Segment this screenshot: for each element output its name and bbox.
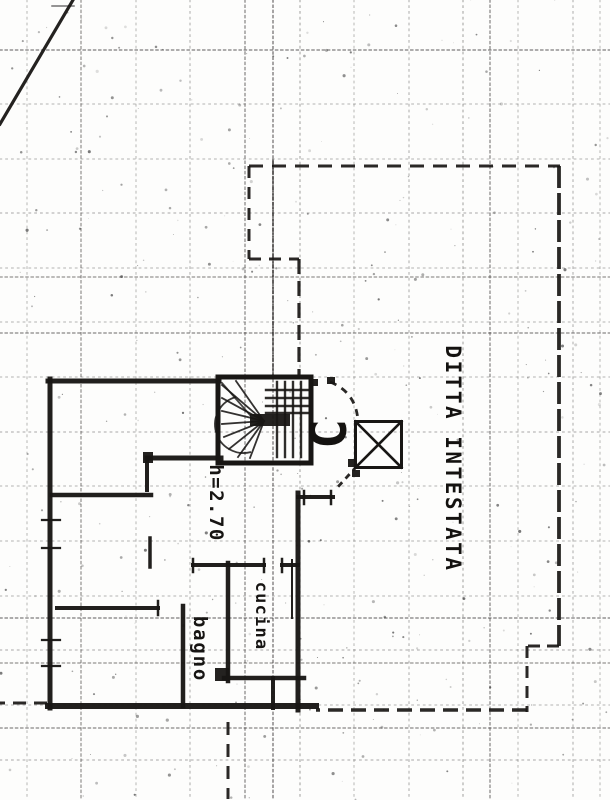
- label-room-cucina: cucina: [251, 582, 271, 651]
- floorplan-sheet: DITTA INTESTATAh=2.70cucinabagnoC: [0, 0, 610, 800]
- floorplan-drawing: DITTA INTESTATAh=2.70cucinabagnoC: [0, 0, 610, 800]
- staircase-newel: [250, 414, 290, 426]
- label-height-note: h=2.70: [205, 464, 227, 542]
- ink-dot: [143, 452, 153, 463]
- ink-dot: [348, 459, 357, 467]
- label-room-bagno: bagno: [189, 616, 211, 682]
- label-letter-c: C: [300, 419, 358, 449]
- ink-dot: [310, 379, 318, 386]
- label-ditta-intestata: DITTA INTESTATA: [441, 345, 465, 572]
- ink-dot: [327, 377, 335, 384]
- ink-dot: [352, 470, 360, 477]
- ink-dot: [215, 668, 229, 681]
